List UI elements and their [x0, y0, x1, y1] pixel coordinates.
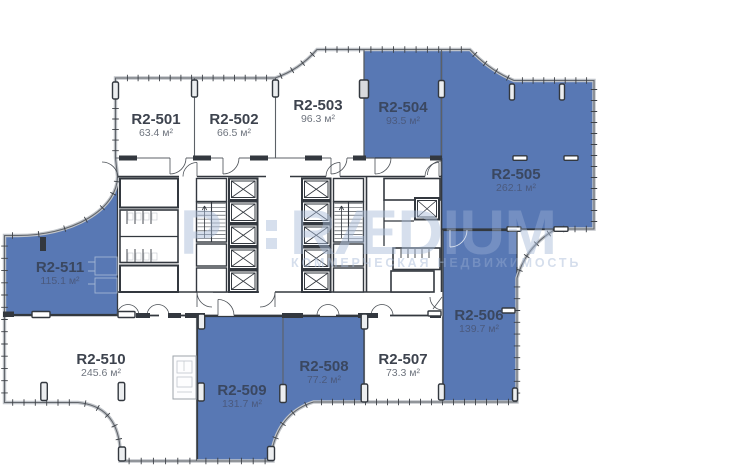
svg-text:93.5 м²: 93.5 м²	[386, 115, 421, 127]
svg-text:262.1 м²: 262.1 м²	[496, 182, 536, 194]
svg-text:R2-511: R2-511	[36, 259, 84, 276]
svg-text:R2-505: R2-505	[491, 166, 540, 183]
svg-text:63.4 м²: 63.4 м²	[139, 127, 174, 139]
svg-text:245.6 м²: 245.6 м²	[81, 367, 121, 379]
svg-text:139.7 м²: 139.7 м²	[459, 323, 499, 335]
svg-text:96.3 м²: 96.3 м²	[301, 113, 336, 125]
svg-text:R2-501: R2-501	[131, 111, 180, 128]
svg-text:77.2 м²: 77.2 м²	[307, 374, 342, 386]
svg-text:66.5 м²: 66.5 м²	[217, 127, 252, 139]
svg-text:R2-508: R2-508	[299, 358, 348, 375]
svg-text:R2-502: R2-502	[209, 111, 258, 128]
svg-text:R2-509: R2-509	[217, 382, 266, 399]
svg-text:R2-503: R2-503	[293, 97, 342, 114]
svg-text:R2-507: R2-507	[378, 351, 427, 368]
svg-text:73.3 м²: 73.3 м²	[386, 367, 421, 379]
svg-text:131.7 м²: 131.7 м²	[222, 398, 262, 410]
svg-text:R2-504: R2-504	[378, 99, 428, 116]
svg-text:115.1 м²: 115.1 м²	[40, 275, 80, 287]
svg-text:R2-510: R2-510	[76, 351, 125, 368]
svg-text:R2-506: R2-506	[454, 307, 503, 324]
